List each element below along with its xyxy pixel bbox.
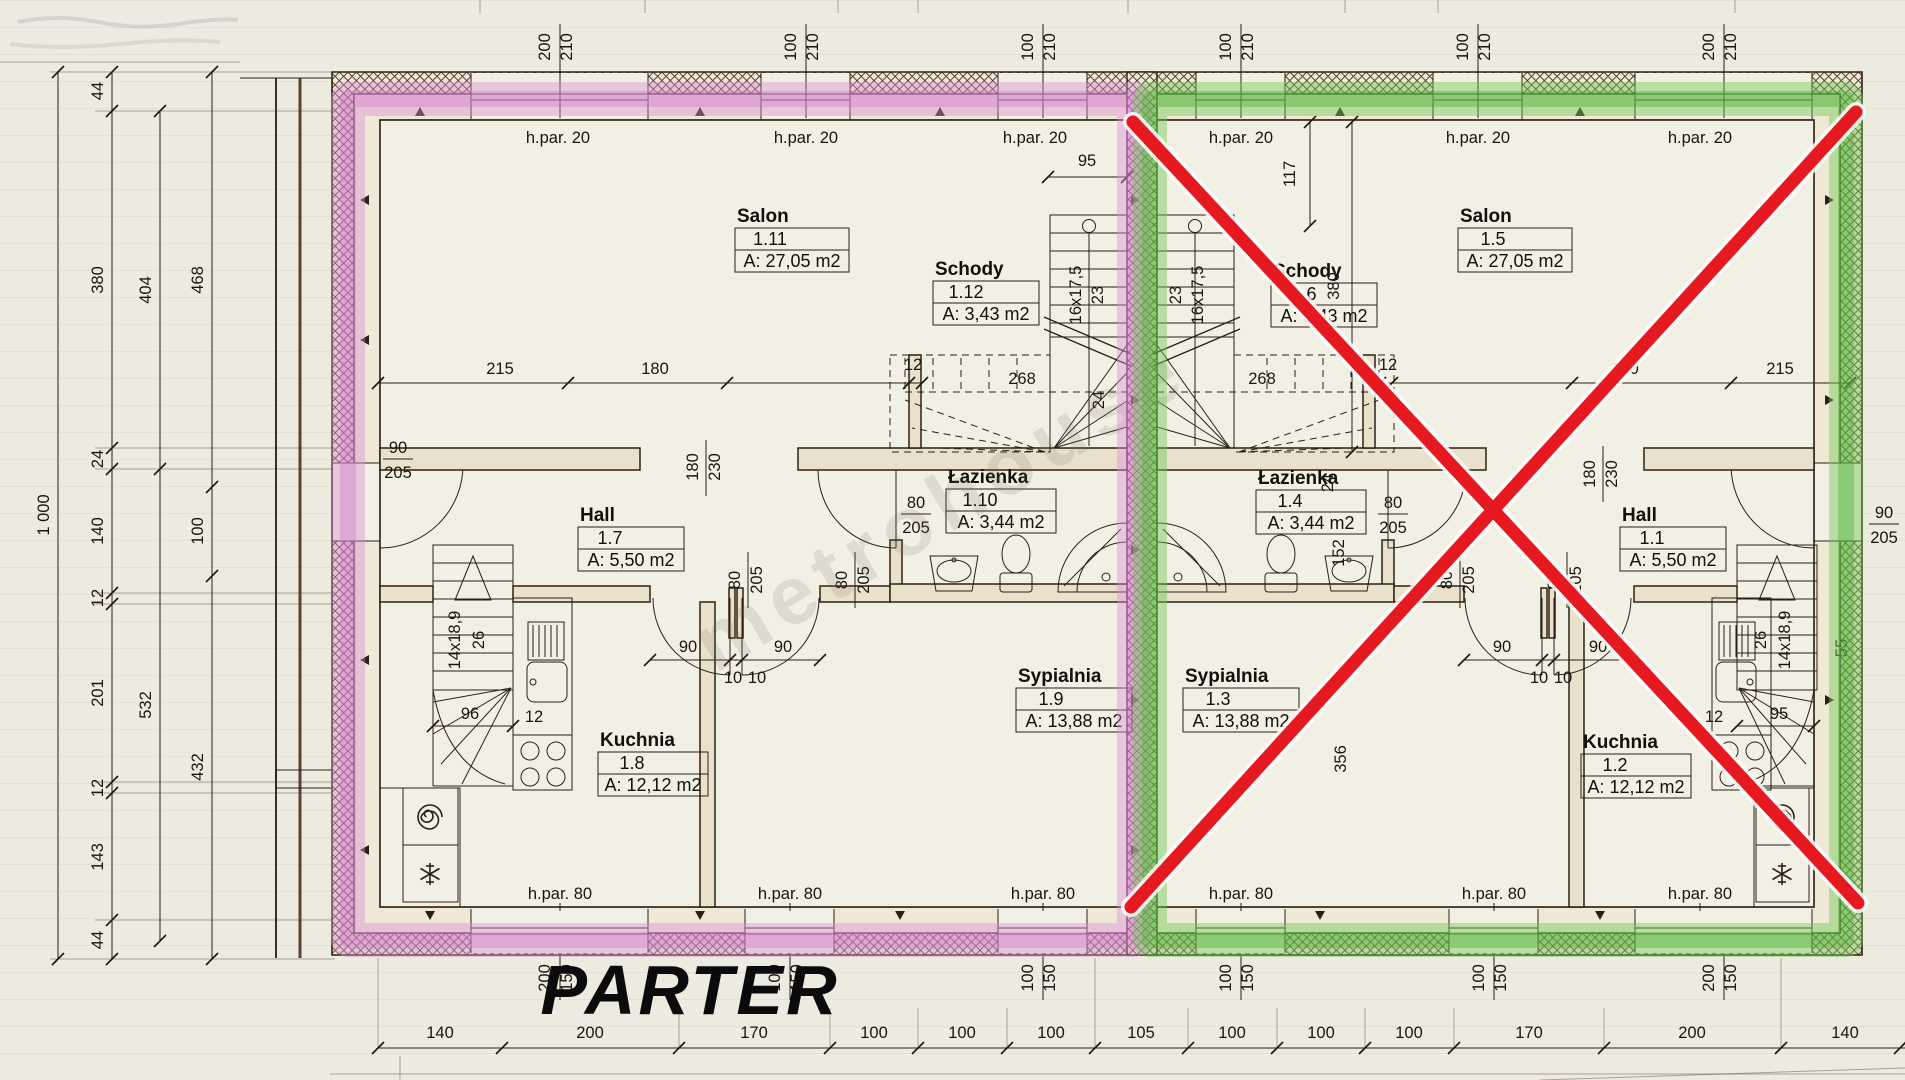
room-number: 1.3 bbox=[1205, 689, 1230, 709]
dim-90: 90 bbox=[1493, 638, 1511, 656]
hpar80-label: h.par. 80 bbox=[1209, 885, 1273, 903]
left-dimension-chains: 1 000 44 380 24 140 12 201 12 143 44 404… bbox=[35, 66, 218, 965]
hpar20-label: h.par. 20 bbox=[1446, 129, 1510, 147]
window-height: 210 bbox=[804, 33, 822, 61]
room-number: 1.2 bbox=[1602, 755, 1627, 775]
room-area: A: 13,88 m2 bbox=[1192, 711, 1289, 731]
room-area: A: 5,50 m2 bbox=[1629, 550, 1716, 570]
room-area: A: 3,44 m2 bbox=[1267, 513, 1354, 533]
chain-c-1: 100 bbox=[189, 517, 207, 545]
dim-96: 96 bbox=[461, 705, 479, 723]
chain-a-0: 44 bbox=[89, 82, 107, 100]
chain-a-3: 140 bbox=[89, 517, 107, 545]
room-number: 1.5 bbox=[1480, 229, 1505, 249]
chain-b-0: 404 bbox=[137, 276, 155, 304]
hpar80-label: h.par. 80 bbox=[1011, 885, 1075, 903]
room-number: 1.11 bbox=[753, 229, 787, 249]
dim-380: 380 bbox=[1325, 272, 1343, 300]
stair-width-right: 23 bbox=[1167, 286, 1185, 304]
chain-a-7: 143 bbox=[89, 843, 107, 871]
dim-268-right: 268 bbox=[1248, 370, 1276, 388]
dim-10: 10 bbox=[1530, 669, 1548, 687]
bottom-dim-5: 100 bbox=[1037, 1024, 1065, 1042]
window-width: 100 bbox=[1019, 33, 1037, 61]
chain-a-1: 380 bbox=[89, 266, 107, 294]
dim-total-1000: 1 000 bbox=[35, 494, 53, 535]
window-height: 210 bbox=[1722, 33, 1740, 61]
dim-356: 356 bbox=[1332, 745, 1350, 773]
room-area: A: 3,43 m2 bbox=[942, 304, 1029, 324]
door-h: 205 bbox=[1870, 529, 1898, 547]
base-stair-steps-right: 14x18,9 bbox=[1776, 611, 1794, 670]
dim-215-right: 215 bbox=[1766, 360, 1794, 378]
dim-12-right: 12 bbox=[1379, 356, 1397, 374]
hpar80-label: h.par. 80 bbox=[1668, 885, 1732, 903]
extension-lines-left bbox=[50, 72, 335, 959]
dim-117: 117 bbox=[1281, 161, 1299, 187]
window-width: 200 bbox=[1700, 964, 1718, 992]
window-height: 210 bbox=[1239, 33, 1257, 61]
opening-w-right: 180 bbox=[1581, 460, 1599, 488]
dim-24-right: 24 bbox=[1319, 474, 1337, 492]
dim-12-left: 12 bbox=[904, 356, 922, 374]
hpar80-label: h.par. 80 bbox=[1462, 885, 1526, 903]
opening-h-right: 230 bbox=[1603, 460, 1621, 488]
room-number: 1.7 bbox=[597, 528, 622, 548]
bottom-dim-8: 100 bbox=[1307, 1024, 1335, 1042]
room-number: 1.4 bbox=[1277, 491, 1302, 511]
hpar20-label: h.par. 20 bbox=[1668, 129, 1732, 147]
room-name: Kuchnia bbox=[1583, 732, 1658, 753]
window-height: 150 bbox=[1722, 964, 1740, 992]
window-width: 200 bbox=[536, 33, 554, 61]
dim-95-right: 95 bbox=[1770, 705, 1788, 723]
window-width: 200 bbox=[1700, 33, 1718, 61]
hpar80-label: h.par. 80 bbox=[528, 885, 592, 903]
stair-steps-left: 16x17,5 bbox=[1067, 266, 1085, 325]
room-area: A: 5,50 m2 bbox=[587, 550, 674, 570]
drawing-title: PARTER bbox=[540, 951, 839, 1029]
room-area: A: 13,88 m2 bbox=[1025, 711, 1122, 731]
bottom-dim-7: 100 bbox=[1218, 1024, 1246, 1042]
hpar20-label: h.par. 20 bbox=[774, 129, 838, 147]
chain-a-4: 12 bbox=[89, 589, 107, 607]
base-stair-steps-left: 14x18,9 bbox=[446, 611, 464, 670]
room-area: A: 12,12 m2 bbox=[1587, 777, 1684, 797]
window-width: 100 bbox=[1217, 33, 1235, 61]
dim-12-counter-right: 12 bbox=[1705, 708, 1723, 726]
hpar80-label: h.par. 80 bbox=[758, 885, 822, 903]
room-name: Salon bbox=[1460, 206, 1512, 227]
room-area: A: 27,05 m2 bbox=[1466, 251, 1563, 271]
door-h: 205 bbox=[384, 464, 412, 482]
stair-steps-right: 16x17,5 bbox=[1189, 266, 1207, 325]
window-height: 210 bbox=[558, 33, 576, 61]
window-height: 210 bbox=[1041, 33, 1059, 61]
room-number: 1.12 bbox=[948, 282, 983, 302]
hpar20-label: h.par. 20 bbox=[1209, 129, 1273, 147]
window-width: 100 bbox=[1454, 33, 1472, 61]
hpar20-label: h.par. 20 bbox=[1003, 129, 1067, 147]
window-width: 100 bbox=[1217, 964, 1235, 992]
door-w: 90 bbox=[1875, 504, 1893, 522]
dim-215-left: 215 bbox=[486, 360, 514, 378]
floor-plan-drawing: Salon1.11A: 27,05 m2 Schody1.12A: 3,43 m… bbox=[0, 0, 1905, 1080]
chain-c-0: 468 bbox=[189, 266, 207, 294]
room-number: 1.8 bbox=[619, 753, 644, 773]
door-h: 205 bbox=[1460, 566, 1478, 594]
window-width: 100 bbox=[1019, 964, 1037, 992]
room-name: Kuchnia bbox=[600, 730, 675, 751]
room-name: Hall bbox=[580, 505, 615, 526]
opening-h-left: 230 bbox=[706, 453, 724, 481]
room-number: 1.9 bbox=[1038, 689, 1063, 709]
room-name: Schody bbox=[935, 259, 1004, 280]
dim-10: 10 bbox=[1554, 669, 1572, 687]
room-name: Sypialnia bbox=[1185, 666, 1269, 687]
window-width: 100 bbox=[782, 33, 800, 61]
chain-a-5: 201 bbox=[89, 679, 107, 707]
dim-152: 152 bbox=[1330, 539, 1348, 567]
dim-12-counter: 12 bbox=[525, 708, 543, 726]
opening-w-left: 180 bbox=[684, 453, 702, 481]
bottom-dim-12: 140 bbox=[1831, 1024, 1859, 1042]
bottom-dim-11: 200 bbox=[1678, 1024, 1706, 1042]
window-height: 150 bbox=[1492, 964, 1510, 992]
door-h: 205 bbox=[1379, 519, 1407, 537]
window-height: 150 bbox=[1041, 964, 1059, 992]
chain-b-1: 532 bbox=[137, 691, 155, 719]
window-width: 100 bbox=[1470, 964, 1488, 992]
room-name: Sypialnia bbox=[1018, 666, 1102, 687]
property-line bbox=[240, 78, 332, 958]
bottom-dim-4: 100 bbox=[948, 1024, 976, 1042]
bottom-dim-10: 170 bbox=[1515, 1024, 1543, 1042]
chain-a-6: 12 bbox=[89, 779, 107, 797]
chain-a-8: 44 bbox=[89, 931, 107, 949]
dim-95: 95 bbox=[1078, 152, 1096, 170]
bottom-dim-0: 140 bbox=[426, 1024, 454, 1042]
bottom-dim-6: 105 bbox=[1127, 1024, 1155, 1042]
chain-a-2: 24 bbox=[89, 450, 107, 468]
room-area: A: 12,12 m2 bbox=[604, 775, 701, 795]
bottom-dim-3: 100 bbox=[860, 1024, 888, 1042]
window-height: 210 bbox=[1476, 33, 1494, 61]
door-w: 80 bbox=[1384, 494, 1402, 512]
chain-c-2: 432 bbox=[189, 753, 207, 781]
window-height: 150 bbox=[1239, 964, 1257, 992]
door-w: 90 bbox=[389, 439, 407, 457]
room-name: Hall bbox=[1622, 505, 1657, 526]
base-stair-width-right: 26 bbox=[1752, 631, 1770, 649]
stair-width-left: 23 bbox=[1089, 286, 1107, 304]
hpar20-label: h.par. 20 bbox=[526, 129, 590, 147]
base-stair-width-left: 26 bbox=[470, 631, 488, 649]
dim-180-left: 180 bbox=[641, 360, 669, 378]
dim-268-left: 268 bbox=[1008, 370, 1036, 388]
bottom-dim-9: 100 bbox=[1395, 1024, 1423, 1042]
room-number: 1.1 bbox=[1639, 528, 1664, 548]
room-name: Salon bbox=[737, 206, 789, 227]
room-area: A: 27,05 m2 bbox=[743, 251, 840, 271]
